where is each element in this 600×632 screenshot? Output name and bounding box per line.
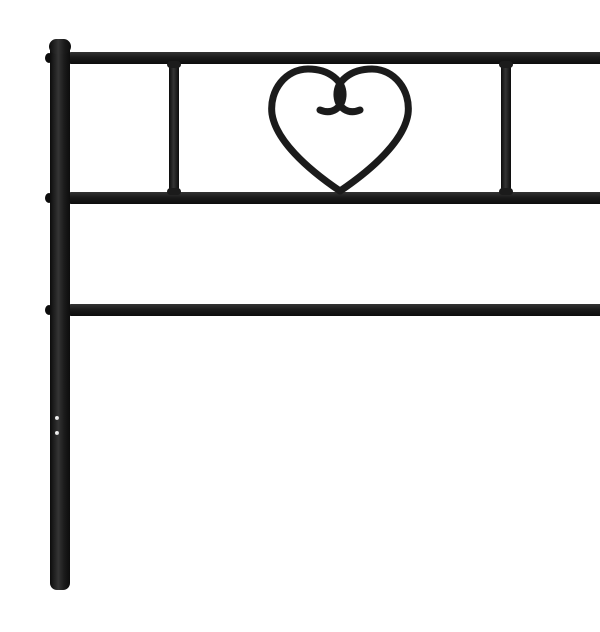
left-post [50,39,70,590]
heart-right-scroll [337,69,408,191]
product-photo-headboard: Black metal bed headboard with a decorat… [40,16,600,616]
screw-hole [55,416,59,420]
heart-left-scroll [272,69,343,191]
heart-ornament-icon [40,16,600,616]
screw-hole [55,431,59,435]
